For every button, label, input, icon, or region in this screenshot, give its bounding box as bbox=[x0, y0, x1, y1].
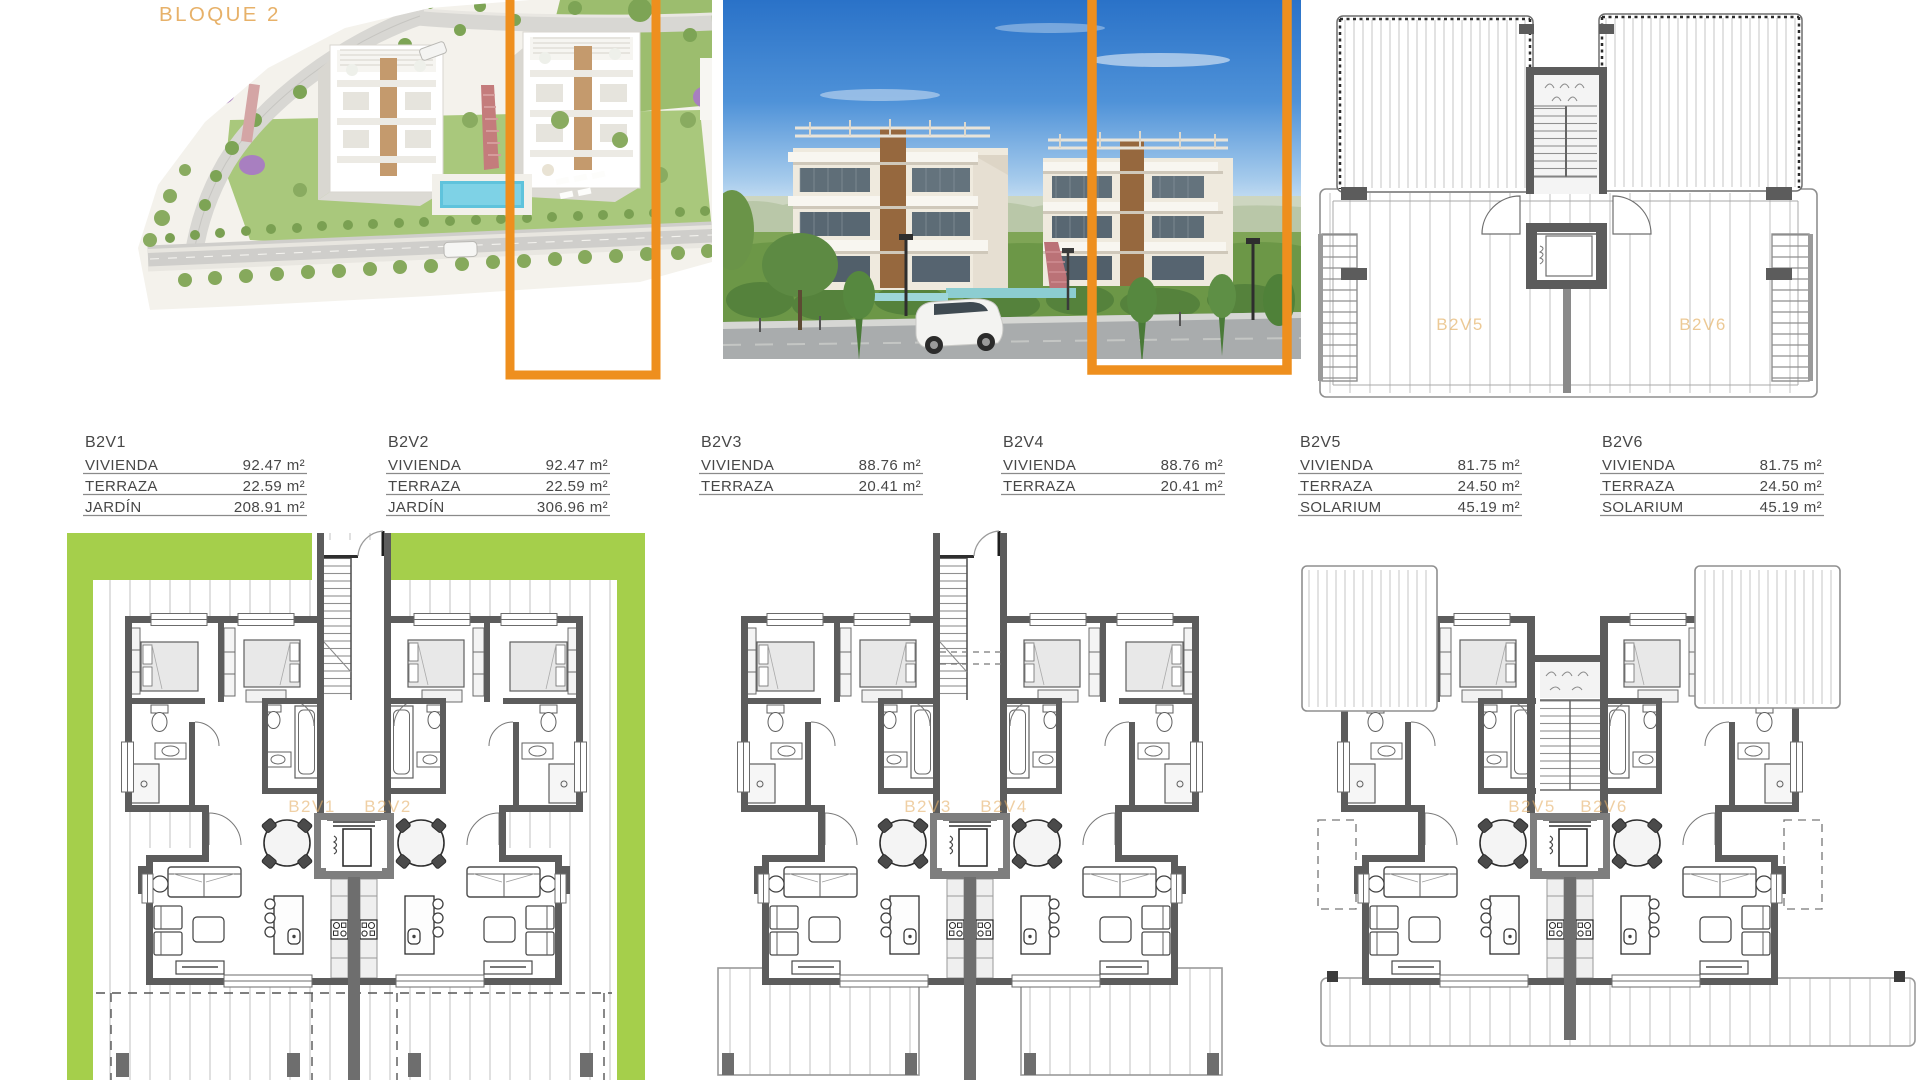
svg-text:B2V6: B2V6 bbox=[1602, 434, 1643, 451]
svg-text:TERRAZA: TERRAZA bbox=[85, 478, 158, 495]
svg-text:B2V3: B2V3 bbox=[701, 434, 742, 451]
svg-text:81.75 m²: 81.75 m² bbox=[1760, 457, 1822, 474]
svg-text:BLOQUE 2: BLOQUE 2 bbox=[159, 3, 281, 26]
svg-text:VIVIENDA: VIVIENDA bbox=[388, 457, 461, 474]
svg-text:45.19 m²: 45.19 m² bbox=[1760, 499, 1822, 516]
svg-text:B2V4: B2V4 bbox=[1003, 434, 1044, 451]
svg-text:24.50 m²: 24.50 m² bbox=[1458, 478, 1520, 495]
svg-text:B2V5: B2V5 bbox=[1300, 434, 1341, 451]
svg-text:88.76 m²: 88.76 m² bbox=[1161, 457, 1223, 474]
svg-text:208.91 m²: 208.91 m² bbox=[234, 499, 305, 516]
svg-text:JARDÍN: JARDÍN bbox=[85, 499, 142, 516]
svg-text:B2V5: B2V5 bbox=[1436, 315, 1484, 334]
svg-text:VIVIENDA: VIVIENDA bbox=[85, 457, 158, 474]
svg-text:TERRAZA: TERRAZA bbox=[1602, 478, 1675, 495]
svg-text:SOLARIUM: SOLARIUM bbox=[1602, 499, 1684, 516]
svg-text:B2V2: B2V2 bbox=[388, 434, 429, 451]
svg-text:SOLARIUM: SOLARIUM bbox=[1300, 499, 1382, 516]
svg-text:JARDÍN: JARDÍN bbox=[388, 499, 445, 516]
svg-text:TERRAZA: TERRAZA bbox=[388, 478, 461, 495]
svg-text:22.59 m²: 22.59 m² bbox=[243, 478, 305, 495]
svg-text:20.41 m²: 20.41 m² bbox=[1161, 478, 1223, 495]
svg-text:VIVIENDA: VIVIENDA bbox=[1602, 457, 1675, 474]
svg-text:B2V4: B2V4 bbox=[980, 797, 1028, 816]
svg-text:B2V3: B2V3 bbox=[904, 797, 952, 816]
svg-text:20.41 m²: 20.41 m² bbox=[859, 478, 921, 495]
svg-text:B2V2: B2V2 bbox=[364, 797, 412, 816]
svg-text:B2V6: B2V6 bbox=[1580, 797, 1628, 816]
svg-text:92.47 m²: 92.47 m² bbox=[546, 457, 608, 474]
svg-text:81.75 m²: 81.75 m² bbox=[1458, 457, 1520, 474]
svg-text:VIVIENDA: VIVIENDA bbox=[1300, 457, 1373, 474]
svg-text:TERRAZA: TERRAZA bbox=[1003, 478, 1076, 495]
svg-text:306.96 m²: 306.96 m² bbox=[537, 499, 608, 516]
svg-text:92.47 m²: 92.47 m² bbox=[243, 457, 305, 474]
svg-text:VIVIENDA: VIVIENDA bbox=[1003, 457, 1076, 474]
svg-text:TERRAZA: TERRAZA bbox=[1300, 478, 1373, 495]
svg-text:VIVIENDA: VIVIENDA bbox=[701, 457, 774, 474]
svg-text:88.76 m²: 88.76 m² bbox=[859, 457, 921, 474]
svg-text:45.19 m²: 45.19 m² bbox=[1458, 499, 1520, 516]
svg-text:TERRAZA: TERRAZA bbox=[701, 478, 774, 495]
svg-text:22.59 m²: 22.59 m² bbox=[546, 478, 608, 495]
svg-text:B2V1: B2V1 bbox=[85, 434, 126, 451]
svg-text:B2V1: B2V1 bbox=[288, 797, 336, 816]
svg-text:B2V5: B2V5 bbox=[1508, 797, 1556, 816]
svg-text:B2V6: B2V6 bbox=[1679, 315, 1727, 334]
svg-text:24.50 m²: 24.50 m² bbox=[1760, 478, 1822, 495]
